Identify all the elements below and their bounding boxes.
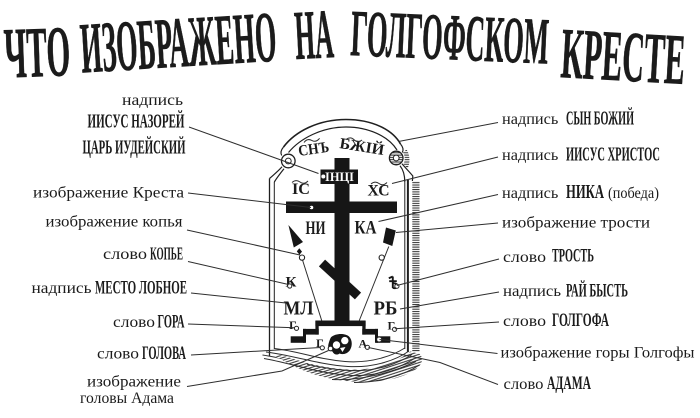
- svg-text:слово: слово: [504, 374, 544, 393]
- svg-text:ГОЛГОФА: ГОЛГОФА: [552, 310, 609, 331]
- svg-text:слово: слово: [113, 312, 155, 331]
- svg-text:надпись: надпись: [502, 183, 558, 202]
- svg-text:слово: слово: [103, 244, 147, 263]
- svg-text:РАЙ БЫСТЬ: РАЙ БЫСТЬ: [566, 280, 628, 302]
- svg-text:ХС: ХС: [368, 183, 390, 200]
- svg-text:МЛ: МЛ: [284, 298, 314, 320]
- svg-text:слово: слово: [503, 247, 546, 266]
- svg-text:ГОРА: ГОРА: [158, 313, 185, 333]
- svg-text:НА: НА: [293, 0, 336, 75]
- svg-text:слово: слово: [97, 344, 139, 363]
- svg-text:ИИСУС ХРИСТОС: ИИСУС ХРИСТОС: [566, 144, 660, 166]
- svg-text:надпись: надпись: [32, 278, 92, 297]
- svg-text:ЧТО: ЧТО: [3, 11, 72, 93]
- svg-text:(победа): (победа): [608, 183, 659, 202]
- svg-text:надпись: надпись: [122, 90, 183, 109]
- svg-text:слово: слово: [503, 311, 546, 330]
- svg-text:надпись: надпись: [502, 109, 558, 128]
- svg-text:СНЪ: СНЪ: [297, 139, 330, 160]
- svg-text:ИЗОБРАЖЕНО: ИЗОБРАЖЕНО: [78, 0, 279, 88]
- svg-text:РБ: РБ: [374, 298, 398, 320]
- svg-text:головы Адама: головы Адама: [80, 388, 174, 407]
- svg-text:ГОЛГОФСКОМ: ГОЛГОФСКОМ: [349, 0, 550, 79]
- svg-text:изображение горы Голгофы: изображение горы Голгофы: [501, 343, 695, 362]
- svg-text:КРЕСТЕ: КРЕСТЕ: [559, 13, 687, 100]
- svg-text:ІС: ІС: [292, 181, 310, 198]
- svg-text:ІНЦІ: ІНЦІ: [325, 170, 354, 184]
- svg-text:ЦАРЬ ИУДЕЙСКИЙ: ЦАРЬ ИУДЕЙСКИЙ: [83, 136, 186, 159]
- svg-text:НИКА: НИКА: [566, 181, 604, 203]
- svg-text:АДАМА: АДАМА: [547, 373, 591, 394]
- svg-text:ИИСУС НАЗОРЕЙ: ИИСУС НАЗОРЕЙ: [88, 110, 185, 133]
- svg-text:изображение копья: изображение копья: [46, 212, 184, 231]
- svg-text:изображение Креста: изображение Креста: [33, 183, 184, 202]
- svg-text:КОПЬЕ: КОПЬЕ: [150, 244, 183, 264]
- svg-text:ГОЛОВА: ГОЛОВА: [142, 344, 186, 364]
- svg-text:ТРОСТЬ: ТРОСТЬ: [552, 246, 594, 267]
- svg-text:надпись: надпись: [503, 281, 561, 300]
- svg-text:КА: КА: [355, 218, 377, 239]
- svg-text:БЖІЙ: БЖІЙ: [338, 135, 385, 159]
- svg-text:СЫН БОЖИЙ: СЫН БОЖИЙ: [566, 107, 634, 130]
- svg-text:МЕСТО ЛОБНОЕ: МЕСТО ЛОБНОЕ: [95, 278, 187, 299]
- svg-text:НИ: НИ: [306, 218, 326, 239]
- svg-text:надпись: надпись: [502, 145, 558, 164]
- svg-text:изображение трости: изображение трости: [502, 213, 650, 232]
